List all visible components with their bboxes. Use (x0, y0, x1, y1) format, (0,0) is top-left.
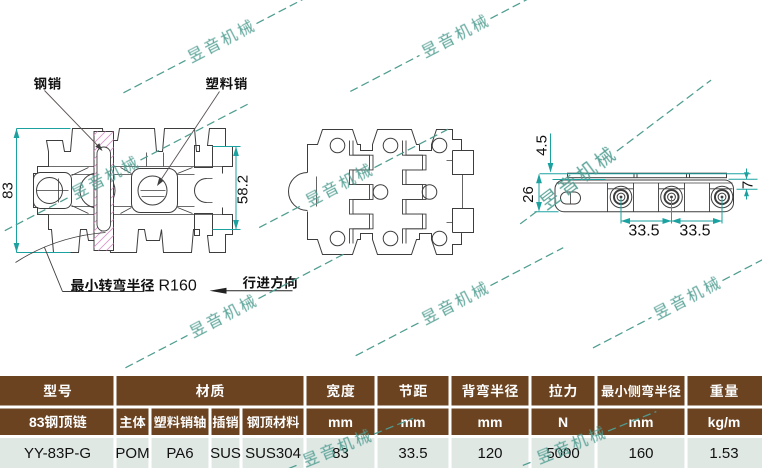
svg-text:33.5: 33.5 (628, 223, 659, 240)
svg-text:SUS304: SUS304 (245, 445, 301, 462)
svg-text:mm: mm (328, 414, 353, 430)
svg-text:SUS: SUS (210, 445, 241, 462)
svg-text:1.53: 1.53 (709, 445, 738, 462)
svg-text:120: 120 (477, 445, 502, 462)
svg-text:160: 160 (628, 445, 653, 462)
svg-text:kg/m: kg/m (708, 414, 741, 430)
svg-text:mm: mm (629, 414, 654, 430)
svg-text:N: N (558, 414, 568, 430)
svg-text:33.5: 33.5 (679, 223, 710, 240)
svg-text:POM: POM (115, 445, 149, 462)
svg-text:PA6: PA6 (166, 445, 193, 462)
svg-text:83: 83 (29, 414, 45, 430)
svg-text:YY-83P-G: YY-83P-G (24, 445, 91, 462)
svg-text:83: 83 (0, 182, 17, 199)
svg-text:33.5: 33.5 (398, 445, 427, 462)
svg-text:R160: R160 (159, 278, 197, 295)
svg-text:26: 26 (520, 186, 537, 203)
svg-text:7: 7 (740, 181, 757, 189)
svg-text:mm: mm (478, 414, 503, 430)
svg-text:58.2: 58.2 (235, 175, 252, 204)
svg-text:4.5: 4.5 (534, 135, 551, 156)
